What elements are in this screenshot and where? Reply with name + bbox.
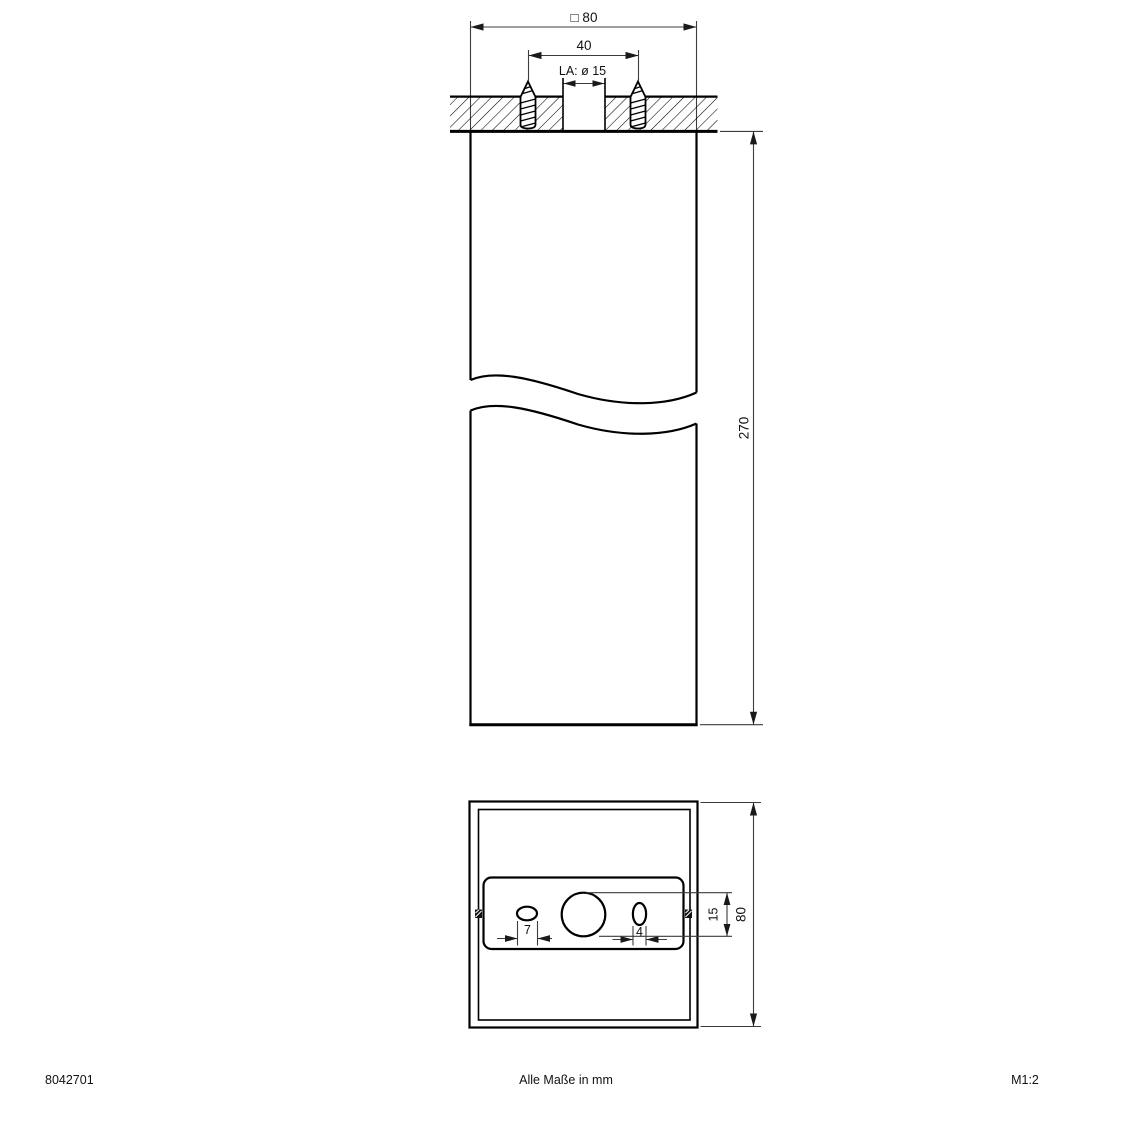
article-number: 8042701: [45, 1073, 94, 1087]
ceiling-hatch-right: [605, 98, 718, 131]
dim-height-label: 270: [737, 417, 752, 440]
side-notch-left: [475, 910, 482, 919]
top-view: □ 80 40 LA: ø 15: [450, 10, 763, 725]
footer: 8042701 Alle Maße in mm M1:2: [45, 1073, 1039, 1087]
housing-inner-square: [479, 810, 691, 1021]
arrowhead-left: [529, 52, 542, 59]
arrowhead-right: [621, 936, 634, 943]
screw-left: [521, 82, 536, 129]
housing-outer-square: [470, 802, 698, 1028]
ceiling-section: [450, 78, 718, 131]
dim-width-label: 80: [734, 907, 749, 922]
dim-cutout: 15: [586, 893, 732, 937]
screw-right: [631, 82, 646, 129]
luminaire-body: [469, 131, 697, 725]
cable-outlet-dim: LA: ø 15: [559, 64, 606, 87]
dim-slot-right: 4: [613, 925, 668, 946]
break-line-upper: [471, 375, 697, 403]
arrowhead-up: [750, 131, 757, 144]
side-notch-right: [685, 910, 692, 919]
drawing-scale: M1:2: [1011, 1073, 1039, 1087]
arrowhead-up: [750, 803, 757, 816]
dim-height: 270: [700, 131, 763, 724]
dim-cutout-label: 15: [707, 908, 721, 922]
dim-screw-spacing-label: 40: [576, 38, 591, 53]
cable-outlet-hole: [562, 893, 606, 937]
mounting-slot-right: [633, 903, 646, 925]
break-line-lower: [471, 406, 697, 434]
arrowhead-left: [646, 936, 659, 943]
arrowhead-right: [684, 23, 697, 30]
arrowhead-down: [750, 1014, 757, 1027]
arrowhead-right: [593, 80, 605, 87]
arrowhead-left: [564, 80, 576, 87]
bottom-view: 7 4 15 80: [470, 802, 762, 1028]
mounting-slot-left: [517, 907, 537, 921]
arrowhead-left: [538, 935, 551, 942]
dim-slot-left: 7: [497, 921, 552, 946]
arrowhead-right: [626, 52, 639, 59]
arrowhead-down: [724, 924, 731, 936]
technical-drawing-page: □ 80 40 LA: ø 15: [0, 0, 1134, 1134]
arrowhead-down: [750, 712, 757, 725]
arrowhead-up: [724, 893, 731, 905]
dim-outer-width-label: □ 80: [571, 10, 598, 25]
arrowhead-left: [471, 23, 484, 30]
units-note: Alle Maße in mm: [519, 1073, 613, 1087]
dim-slot-left-label: 7: [524, 923, 531, 937]
dim-slot-right-label: 4: [636, 925, 643, 939]
cable-outlet-label: LA: ø 15: [559, 64, 606, 78]
arrowhead-right: [505, 935, 518, 942]
dimension-drawing: □ 80 40 LA: ø 15: [0, 0, 1134, 1134]
ceiling-hatch-left: [450, 98, 563, 131]
